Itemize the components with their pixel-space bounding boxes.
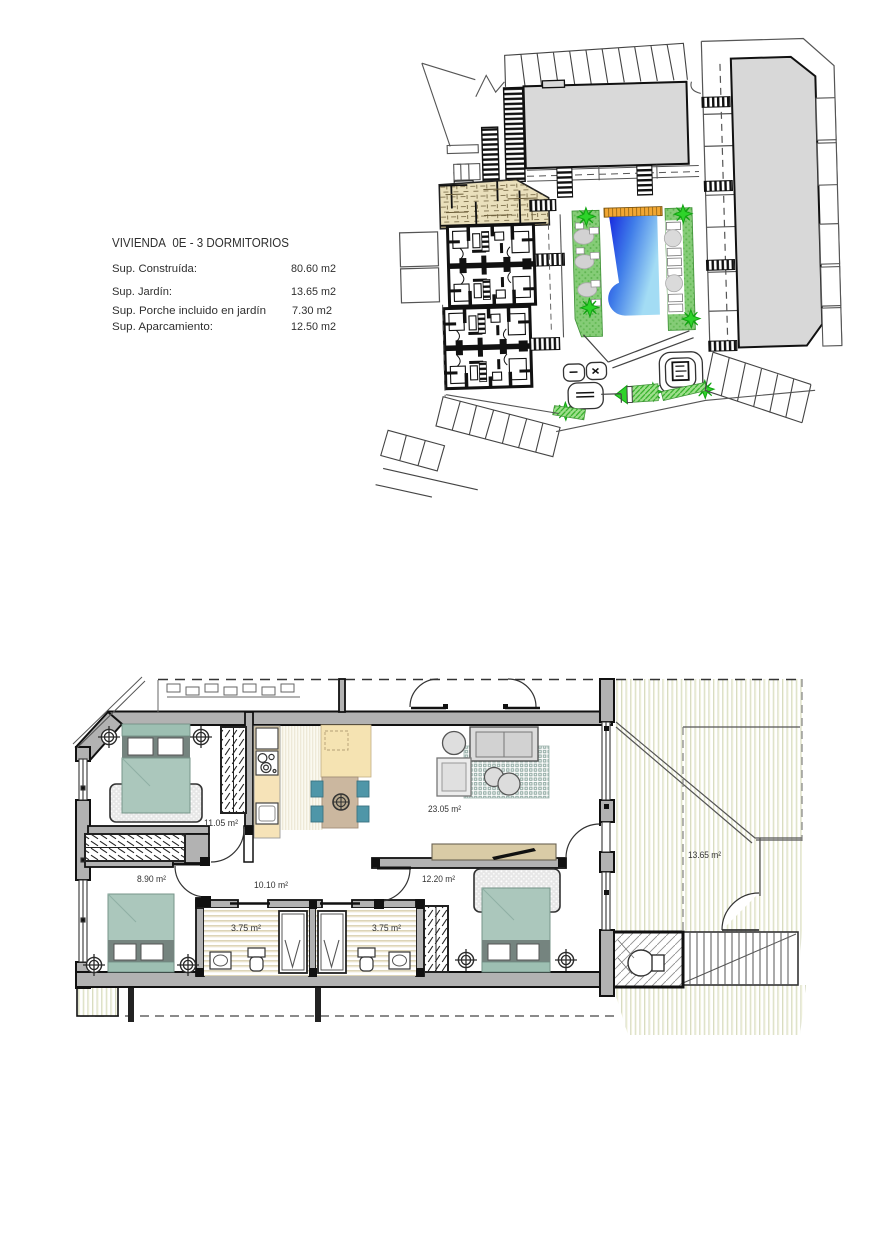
svg-text:3.75 m²: 3.75 m² [231,923,262,934]
svg-text:13.65 m²: 13.65 m² [688,850,722,861]
svg-text:VIVIENDA 0E - 3 DORMITORIOS: VIVIENDA 0E - 3 DORMITORIOS [112,236,289,250]
svg-text:10.10 m²: 10.10 m² [254,880,289,891]
svg-text:80.60 m2: 80.60 m2 [291,263,336,275]
svg-text:12.20 m²: 12.20 m² [422,874,456,885]
svg-text:13.65 m2: 13.65 m2 [291,286,336,298]
svg-text:Sup. Construída:: Sup. Construída: [112,263,197,275]
svg-text:23.05 m²: 23.05 m² [428,804,462,815]
svg-text:Sup. Porche incluido en jardín: Sup. Porche incluido en jardín [112,305,266,317]
svg-text:11.05 m²: 11.05 m² [204,818,239,829]
svg-text:8.90 m²: 8.90 m² [137,874,167,885]
svg-text:Sup. Aparcamiento:: Sup. Aparcamiento: [112,321,213,333]
svg-text:7.30 m2: 7.30 m2 [292,305,332,317]
svg-text:3.75 m²: 3.75 m² [372,923,402,934]
svg-text:Sup. Jardín:: Sup. Jardín: [112,286,172,298]
svg-text:12.50 m2: 12.50 m2 [291,321,336,333]
